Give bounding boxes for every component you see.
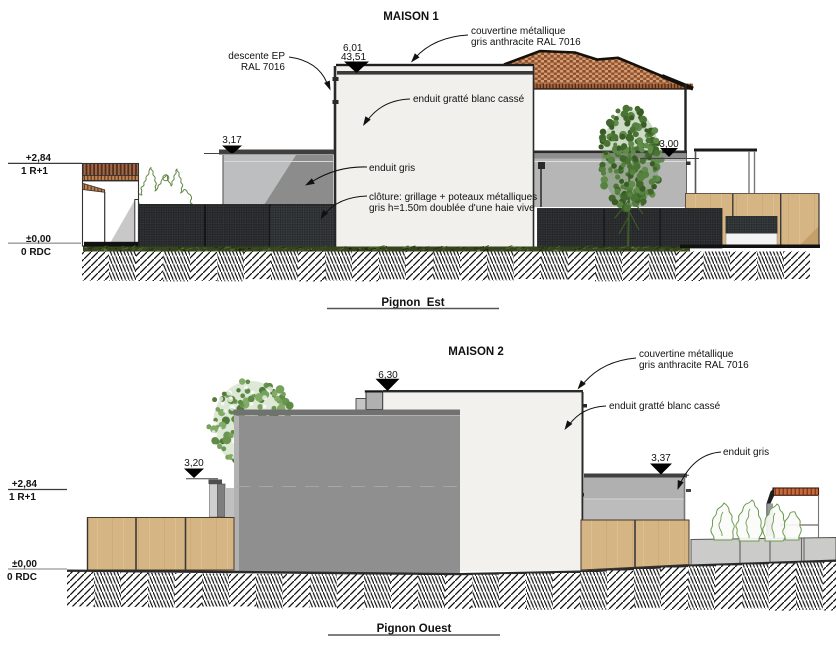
svg-text:enduit gratté blanc cassé: enduit gratté blanc cassé	[413, 94, 525, 105]
svg-text:3,17: 3,17	[222, 135, 242, 146]
svg-text:+2,84: +2,84	[26, 153, 52, 164]
svg-text:1 R+1: 1 R+1	[21, 166, 48, 177]
svg-text:0 RDC: 0 RDC	[21, 247, 51, 258]
svg-text:Pignon Est: Pignon Est	[381, 297, 444, 309]
svg-text:43,51: 43,51	[341, 52, 366, 63]
svg-text:couvertine métallique: couvertine métallique	[639, 349, 734, 360]
svg-text:3,37: 3,37	[651, 453, 671, 464]
svg-text:gris h=1.50m doublée d'une hai: gris h=1.50m doublée d'une haie vive	[369, 203, 535, 214]
svg-text:0 RDC: 0 RDC	[7, 572, 37, 583]
svg-text:RAL 7016: RAL 7016	[241, 62, 286, 73]
svg-text:enduit gratté blanc cassé: enduit gratté blanc cassé	[609, 401, 721, 412]
svg-text:couvertine métallique: couvertine métallique	[471, 26, 566, 37]
svg-text:±0,00: ±0,00	[26, 234, 51, 245]
svg-text:descente EP: descente EP	[228, 51, 285, 62]
svg-text:MAISON 1: MAISON 1	[383, 11, 439, 23]
svg-text:3,20: 3,20	[184, 458, 204, 469]
svg-text:enduit gris: enduit gris	[369, 163, 415, 174]
svg-text:gris anthracite RAL 7016: gris anthracite RAL 7016	[639, 360, 749, 371]
svg-text:Pignon Ouest: Pignon Ouest	[377, 623, 452, 635]
svg-text:±0,00: ±0,00	[12, 559, 37, 570]
svg-text:clôture: grillage + poteaux mé: clôture: grillage + poteaux métalliques	[369, 192, 537, 203]
svg-text:+2,84: +2,84	[12, 479, 38, 490]
svg-text:gris anthracite RAL 7016: gris anthracite RAL 7016	[471, 37, 581, 48]
svg-text:enduit gris: enduit gris	[723, 447, 769, 458]
svg-text:MAISON 2: MAISON 2	[448, 346, 504, 358]
svg-text:1 R+1: 1 R+1	[9, 492, 36, 503]
